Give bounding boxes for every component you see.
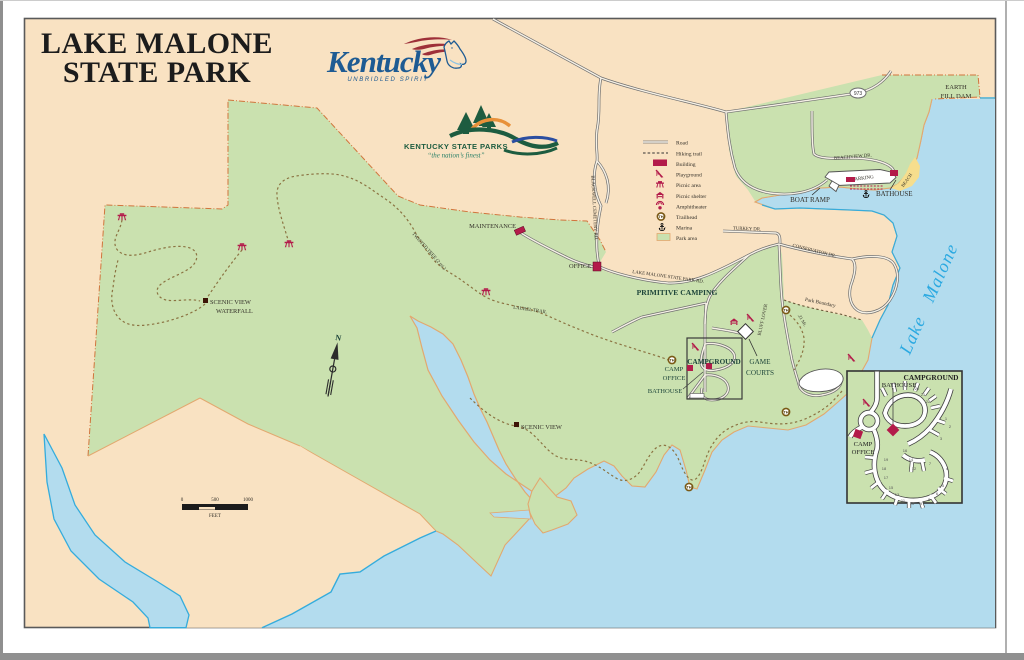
svg-text:Picnic shelter: Picnic shelter (676, 194, 706, 200)
svg-text:21: 21 (921, 392, 926, 397)
svg-text:12: 12 (912, 466, 917, 471)
svg-text:17: 17 (884, 475, 889, 480)
svg-text:COURTS: COURTS (746, 369, 774, 377)
svg-text:OFFICE: OFFICE (852, 449, 875, 456)
svg-text:14: 14 (909, 457, 914, 462)
svg-text:PRIMITIVE CAMPING: PRIMITIVE CAMPING (637, 288, 718, 297)
svg-text:1000: 1000 (243, 498, 254, 503)
svg-text:Trailhead: Trailhead (676, 215, 697, 221)
svg-text:10: 10 (910, 501, 915, 506)
svg-text:16: 16 (903, 448, 908, 453)
svg-text:500: 500 (211, 498, 219, 503)
svg-text:13: 13 (895, 492, 900, 497)
svg-text:973: 973 (854, 91, 863, 97)
svg-text:Kentucky: Kentucky (326, 44, 441, 79)
svg-text:EARTH: EARTH (945, 84, 967, 91)
svg-text:Building: Building (676, 162, 696, 168)
svg-text:Amphitheater: Amphitheater (676, 205, 707, 211)
svg-text:BOAT RAMP: BOAT RAMP (790, 196, 830, 204)
svg-text:SCENIC VIEW: SCENIC VIEW (521, 424, 563, 431)
svg-text:CAMP: CAMP (854, 441, 873, 448)
svg-text:FEET: FEET (209, 514, 221, 519)
svg-text:22: 22 (926, 399, 931, 404)
svg-text:CAMPGROUND: CAMPGROUND (903, 373, 958, 382)
svg-text:MAINTENANCE: MAINTENANCE (469, 223, 516, 230)
svg-text:“the nation’s finest”: “the nation’s finest” (427, 152, 484, 160)
svg-text:UNBRIDLED SPIRIT: UNBRIDLED SPIRIT (347, 77, 428, 83)
svg-text:FILL DAM: FILL DAM (941, 93, 972, 100)
svg-text:BATHOUSE: BATHOUSE (648, 388, 682, 395)
svg-text:SCENIC VIEW: SCENIC VIEW (210, 299, 252, 306)
svg-text:OFFICE: OFFICE (569, 263, 591, 270)
svg-text:18: 18 (882, 466, 887, 471)
svg-text:BATHOUSE: BATHOUSE (882, 382, 916, 389)
svg-text:OFFICE: OFFICE (663, 375, 686, 382)
svg-text:STATE PARK: STATE PARK (63, 56, 251, 89)
svg-text:20: 20 (915, 386, 920, 391)
svg-text:CAMP: CAMP (665, 366, 684, 373)
svg-text:TURKEY DR.: TURKEY DR. (733, 227, 762, 233)
svg-text:Hiking trail: Hiking trail (676, 152, 702, 158)
svg-text:CAMPGROUND: CAMPGROUND (687, 358, 741, 366)
svg-text:Marina: Marina (676, 226, 693, 232)
svg-text:Road: Road (676, 141, 688, 147)
svg-text:19: 19 (884, 457, 889, 462)
svg-text:BATHOUSE: BATHOUSE (876, 190, 913, 198)
svg-text:Park area: Park area (676, 236, 697, 242)
svg-text:Picnic area: Picnic area (676, 183, 701, 189)
svg-text:15: 15 (889, 485, 894, 490)
svg-text:KENTUCKY STATE PARKS: KENTUCKY STATE PARKS (404, 142, 508, 151)
svg-text:GAME: GAME (749, 358, 771, 366)
svg-text:Playground: Playground (676, 173, 702, 179)
svg-text:WATERFALL: WATERFALL (216, 308, 253, 315)
